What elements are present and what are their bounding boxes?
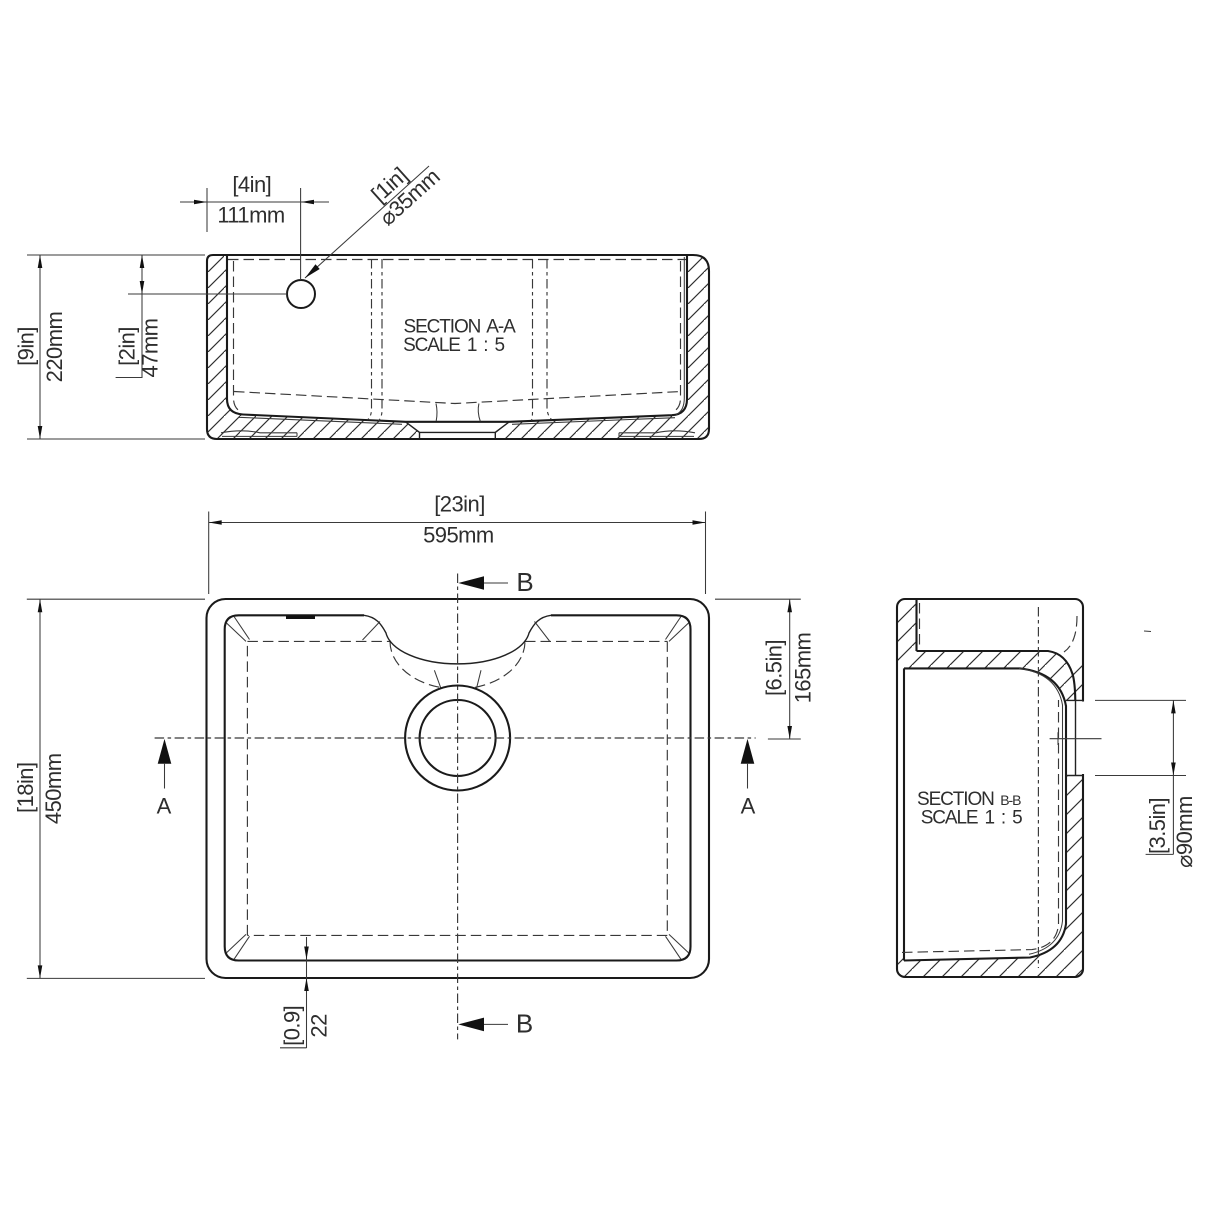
svg-text:165mm: 165mm xyxy=(790,633,815,704)
svg-text:[9in]: [9in] xyxy=(14,327,39,366)
svg-text:B: B xyxy=(516,1009,533,1039)
svg-text:B: B xyxy=(516,567,533,597)
svg-text:22: 22 xyxy=(306,1014,331,1038)
svg-text:[18in]: [18in] xyxy=(13,762,38,813)
svg-text:[4in]: [4in] xyxy=(232,172,271,197)
svg-text:220mm: 220mm xyxy=(42,312,67,383)
svg-text:⌀90mm: ⌀90mm xyxy=(1172,796,1197,868)
svg-text:[2in]: [2in] xyxy=(115,327,140,366)
svg-text:A: A xyxy=(157,794,172,819)
svg-text:SCALE 1 : 5: SCALE 1 : 5 xyxy=(403,335,504,356)
svg-text:47mm: 47mm xyxy=(138,319,163,378)
svg-text:[23in]: [23in] xyxy=(434,492,485,517)
svg-text:[0.9]: [0.9] xyxy=(279,1006,304,1046)
svg-text:A: A xyxy=(741,794,756,819)
svg-text:[6.5in]: [6.5in] xyxy=(762,640,787,696)
svg-text:111mm: 111mm xyxy=(217,203,284,228)
svg-text:SCALE 1 : 5: SCALE 1 : 5 xyxy=(921,808,1022,829)
svg-text:450mm: 450mm xyxy=(41,753,66,824)
svg-text:[3.5in]: [3.5in] xyxy=(1145,798,1170,854)
svg-text:595mm: 595mm xyxy=(423,523,494,548)
